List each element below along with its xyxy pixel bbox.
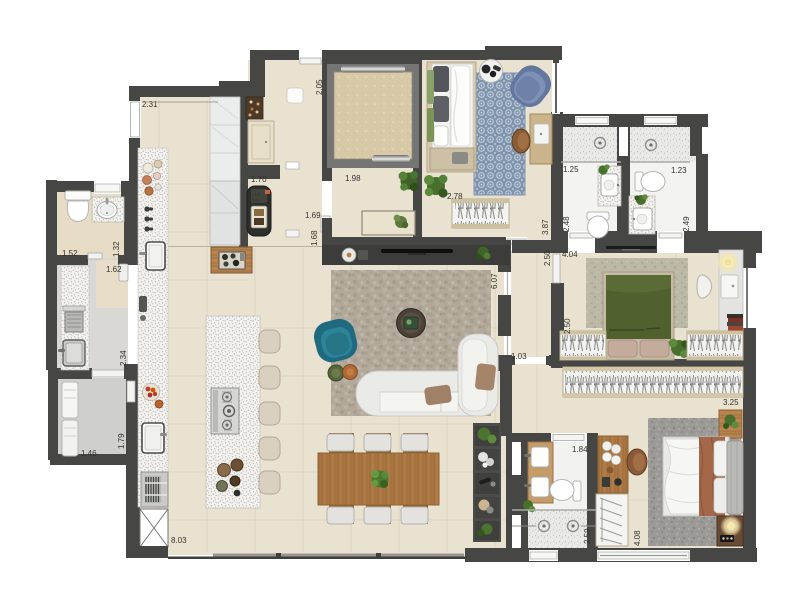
- svg-text:3.87: 3.87: [541, 219, 550, 235]
- svg-text:2.59: 2.59: [583, 528, 592, 544]
- svg-text:2.50: 2.50: [543, 250, 552, 266]
- svg-text:2.50: 2.50: [563, 318, 572, 334]
- svg-text:1.70: 1.70: [251, 175, 267, 184]
- svg-text:2.34: 2.34: [119, 350, 128, 366]
- svg-text:1.68: 1.68: [310, 230, 319, 246]
- svg-text:1.25: 1.25: [563, 165, 579, 174]
- svg-text:2.78: 2.78: [447, 192, 463, 201]
- svg-text:1.79: 1.79: [117, 433, 126, 449]
- svg-text:1.69: 1.69: [305, 211, 321, 220]
- svg-text:-12: -12: [253, 192, 260, 197]
- svg-text:1.98: 1.98: [345, 174, 361, 183]
- svg-text:6.07: 6.07: [490, 273, 499, 289]
- svg-text:4.08: 4.08: [633, 530, 642, 546]
- svg-text:414: 414: [252, 198, 258, 202]
- svg-text:1.03: 1.03: [511, 352, 527, 361]
- svg-text:1.46: 1.46: [81, 449, 97, 458]
- svg-text:2.49: 2.49: [682, 216, 691, 232]
- svg-text:1.32: 1.32: [112, 241, 121, 257]
- svg-text:1.23: 1.23: [671, 166, 687, 175]
- svg-text:1.52: 1.52: [62, 249, 78, 258]
- svg-text:1.84: 1.84: [572, 445, 588, 454]
- svg-text:1.62: 1.62: [106, 265, 122, 274]
- svg-text:4.04: 4.04: [562, 250, 578, 259]
- svg-text:2.05: 2.05: [315, 79, 324, 95]
- svg-text:2.48: 2.48: [562, 216, 571, 232]
- svg-text:2.31: 2.31: [142, 100, 158, 109]
- svg-text:3.25: 3.25: [723, 398, 739, 407]
- svg-text:8.03: 8.03: [171, 536, 187, 545]
